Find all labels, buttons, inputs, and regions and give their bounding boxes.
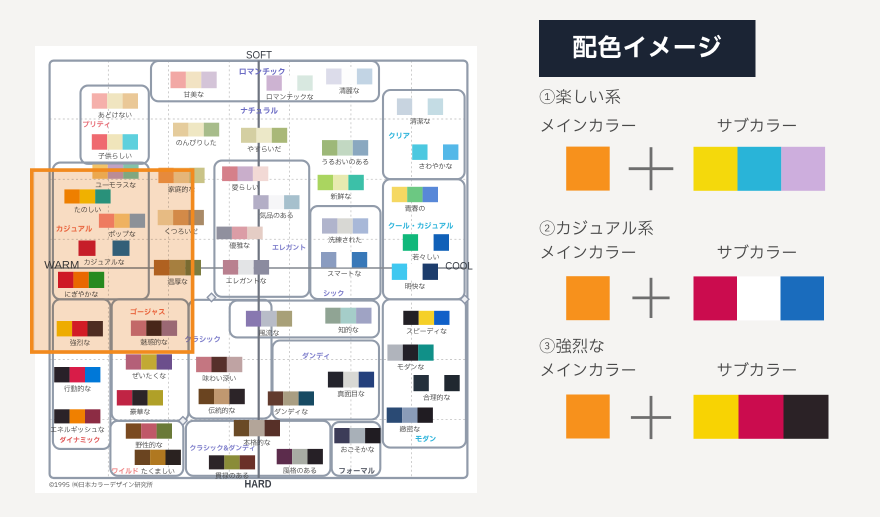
svg-text:HARD: HARD [245, 479, 272, 491]
svg-text:SOFT: SOFT [246, 50, 272, 62]
svg-text:COOL: COOL [445, 261, 473, 273]
